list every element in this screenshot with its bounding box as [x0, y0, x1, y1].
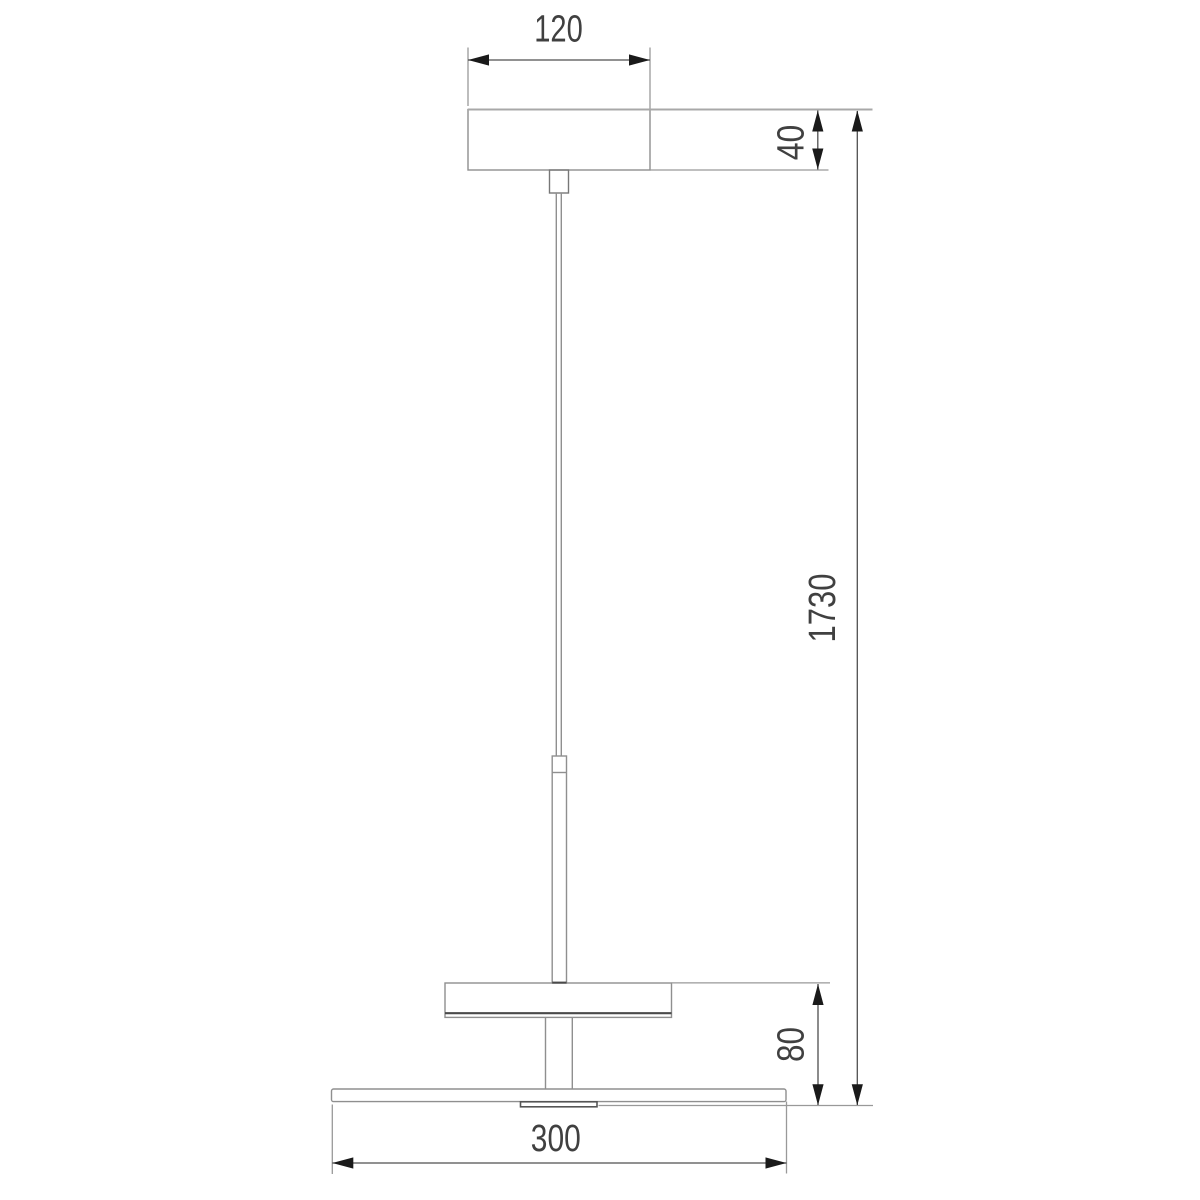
svg-text:120: 120 [534, 8, 583, 50]
svg-text:80: 80 [771, 1027, 813, 1062]
svg-text:1730: 1730 [802, 574, 844, 643]
svg-text:40: 40 [771, 125, 813, 161]
svg-text:300: 300 [531, 1118, 581, 1160]
